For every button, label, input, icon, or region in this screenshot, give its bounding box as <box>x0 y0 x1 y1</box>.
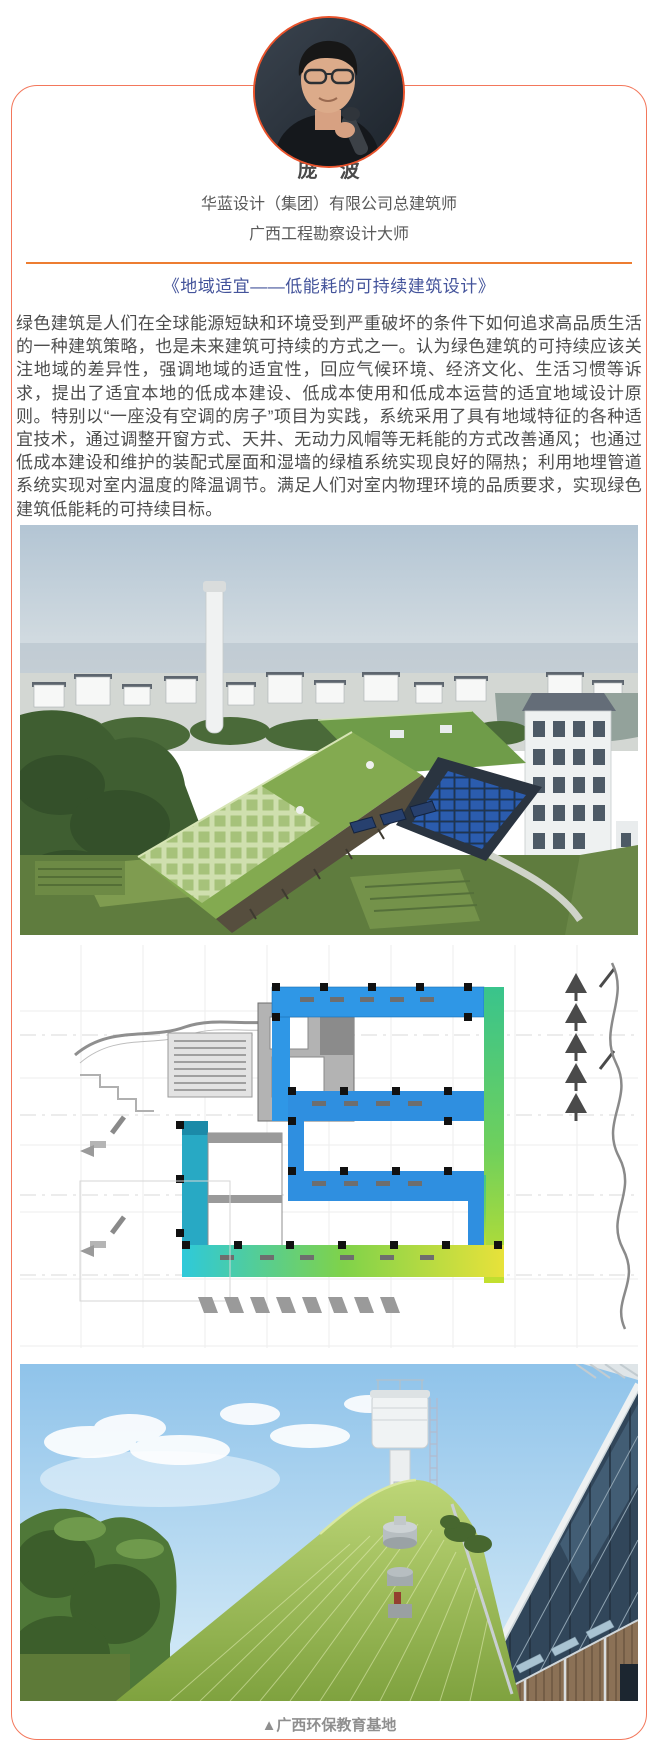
photo-site-plan-diagram[interactable] <box>20 945 638 1348</box>
lecture-title: 《地域适宜——低能耗的可持续建筑设计》 <box>12 276 646 298</box>
lecture-abstract: 绿色建筑是人们在全球能源短缺和环境受到严重破坏的条件下如何追求高品质生活的一种建… <box>16 312 642 521</box>
article-page: { "profile": { "name": "庞 波", "org_title… <box>0 0 658 1748</box>
aerial-photo-illustration <box>20 525 638 935</box>
orange-divider <box>26 262 632 264</box>
image-caption: ▲广西环保教育基地 <box>12 1716 646 1736</box>
photo-grass-roof[interactable] <box>20 1364 638 1701</box>
speaker-bio: 华蓝设计（集团）有限公司总建筑师 广西工程勘察设计大师 <box>12 190 646 250</box>
speaker-avatar <box>253 16 405 168</box>
speaker-org-title: 华蓝设计（集团）有限公司总建筑师 <box>12 190 646 220</box>
grass-roof-illustration <box>20 1364 638 1701</box>
article-card: 庞 波 华蓝设计（集团）有限公司总建筑师 广西工程勘察设计大师 《地域适宜——低… <box>11 85 647 1740</box>
portrait-photo-illustration <box>255 18 403 166</box>
site-plan-illustration <box>20 945 638 1348</box>
speaker-honor-title: 广西工程勘察设计大师 <box>12 220 646 250</box>
photo-aerial-green-roof[interactable] <box>20 525 638 935</box>
